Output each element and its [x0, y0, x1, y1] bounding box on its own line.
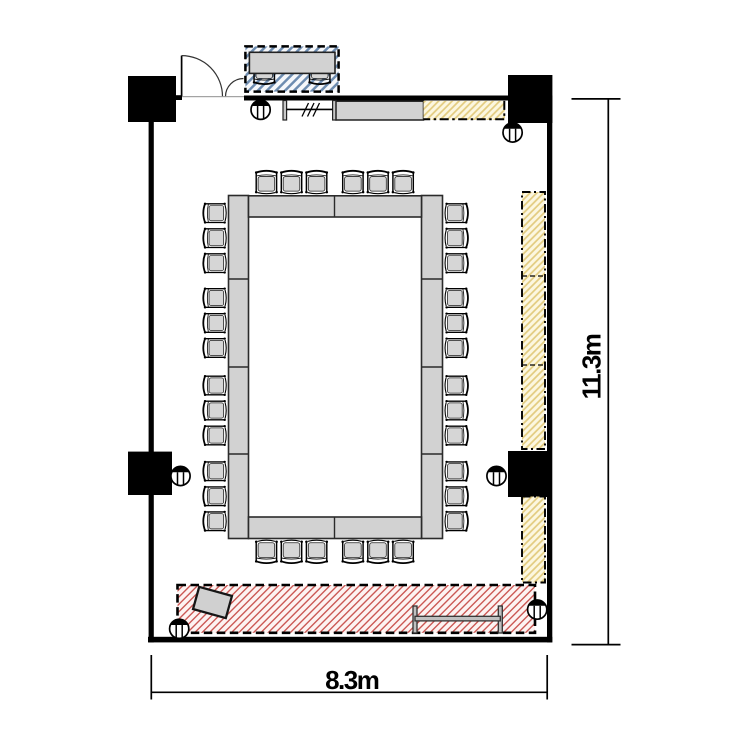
svg-text:11.3m: 11.3m — [577, 334, 607, 399]
svg-text:8.3m: 8.3m — [325, 665, 379, 695]
